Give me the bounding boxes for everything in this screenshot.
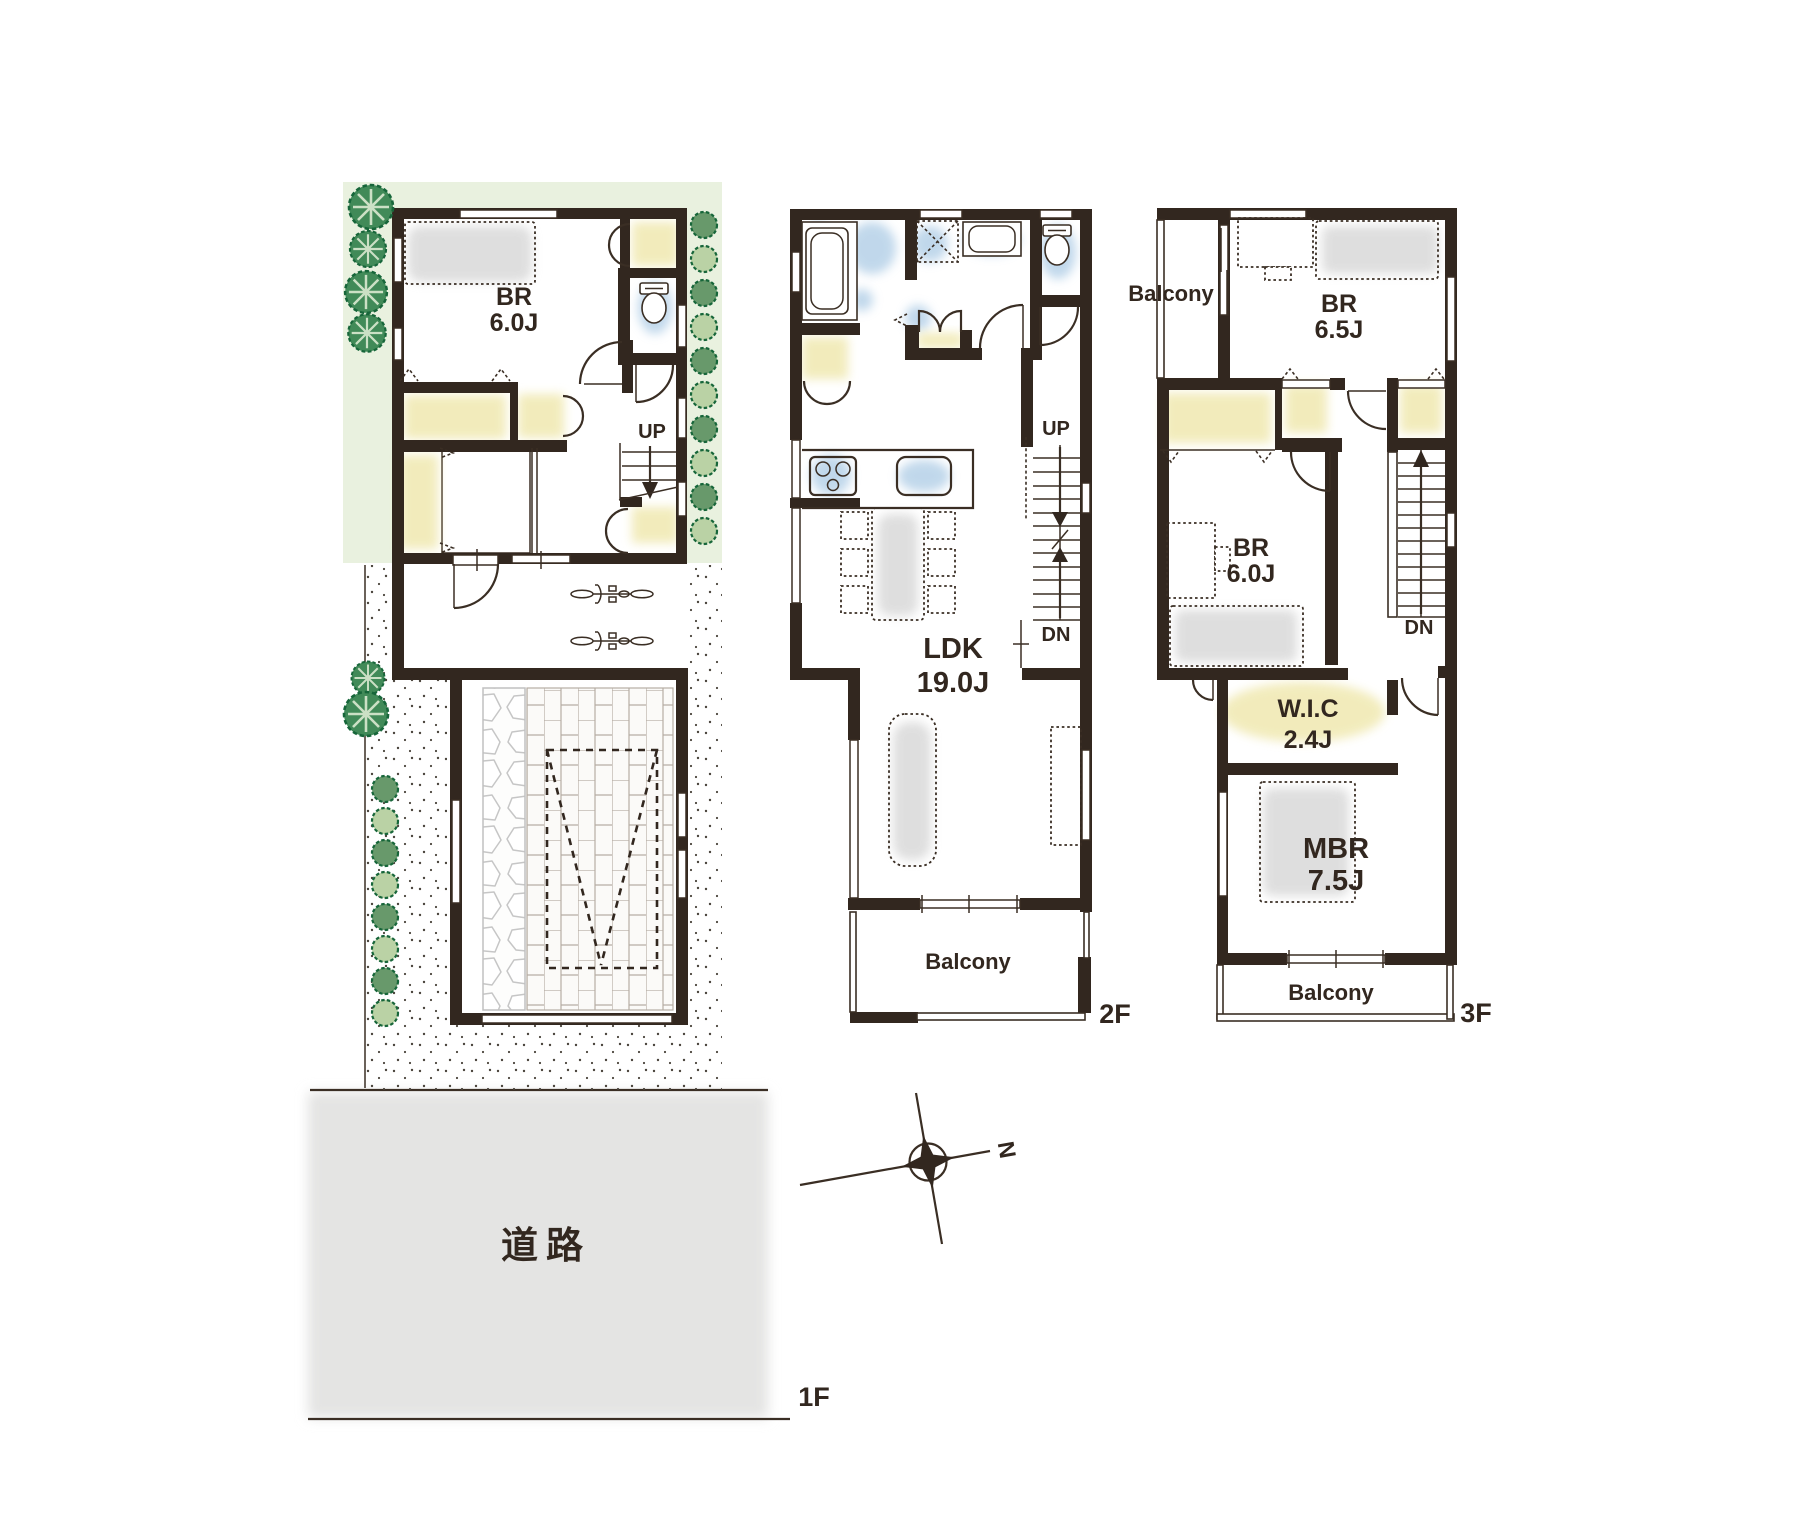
label-1f-br-name: BR — [496, 283, 532, 311]
floor-plan-3f — [1157, 208, 1457, 1022]
floor-plan-2f — [790, 209, 1092, 1023]
label-3f-wic-name: W.I.C — [1277, 695, 1338, 723]
label-1f-tag: 1F — [798, 1382, 830, 1412]
compass-north-label: N — [993, 1139, 1021, 1160]
label-3f-br-a-size: 6.5J — [1315, 316, 1364, 344]
floor-plan-sheet: N BR 6.0J UP 道路 1F UP DN LDK 19.0J Balco… — [0, 0, 1800, 1530]
label-2f-tag: 2F — [1099, 999, 1131, 1029]
label-2f-up: UP — [1042, 418, 1070, 440]
label-3f-balcony-bottom: Balcony — [1288, 980, 1374, 1005]
label-3f-mbr-size: 7.5J — [1308, 865, 1364, 897]
label-3f-br-b-name: BR — [1233, 534, 1269, 562]
porch-area — [392, 563, 688, 668]
stone-path — [483, 688, 525, 1010]
label-2f-ldk-size: 19.0J — [917, 667, 990, 699]
label-2f-ldk-name: LDK — [923, 633, 983, 665]
label-2f-dn: DN — [1042, 624, 1071, 646]
label-3f-br-b-size: 6.0J — [1227, 560, 1276, 588]
label-1f-up: UP — [638, 421, 666, 443]
compass-rose: N — [800, 1093, 1021, 1244]
label-3f-br-a-name: BR — [1321, 290, 1357, 318]
label-2f-balcony: Balcony — [925, 949, 1011, 974]
label-3f-tag: 3F — [1460, 998, 1492, 1028]
label-1f-br-size: 6.0J — [490, 309, 539, 337]
label-3f-wic-size: 2.4J — [1284, 726, 1333, 754]
label-3f-dn: DN — [1405, 617, 1434, 639]
label-3f-mbr-name: MBR — [1303, 833, 1369, 865]
label-road: 道路 — [501, 1225, 591, 1266]
brick-driveway — [527, 688, 673, 1010]
floor-plan-drawing: N BR 6.0J UP 道路 1F UP DN LDK 19.0J Balco… — [0, 0, 1800, 1530]
vanity-sink — [963, 222, 1021, 256]
label-3f-balcony-side: Balcony — [1128, 281, 1214, 306]
